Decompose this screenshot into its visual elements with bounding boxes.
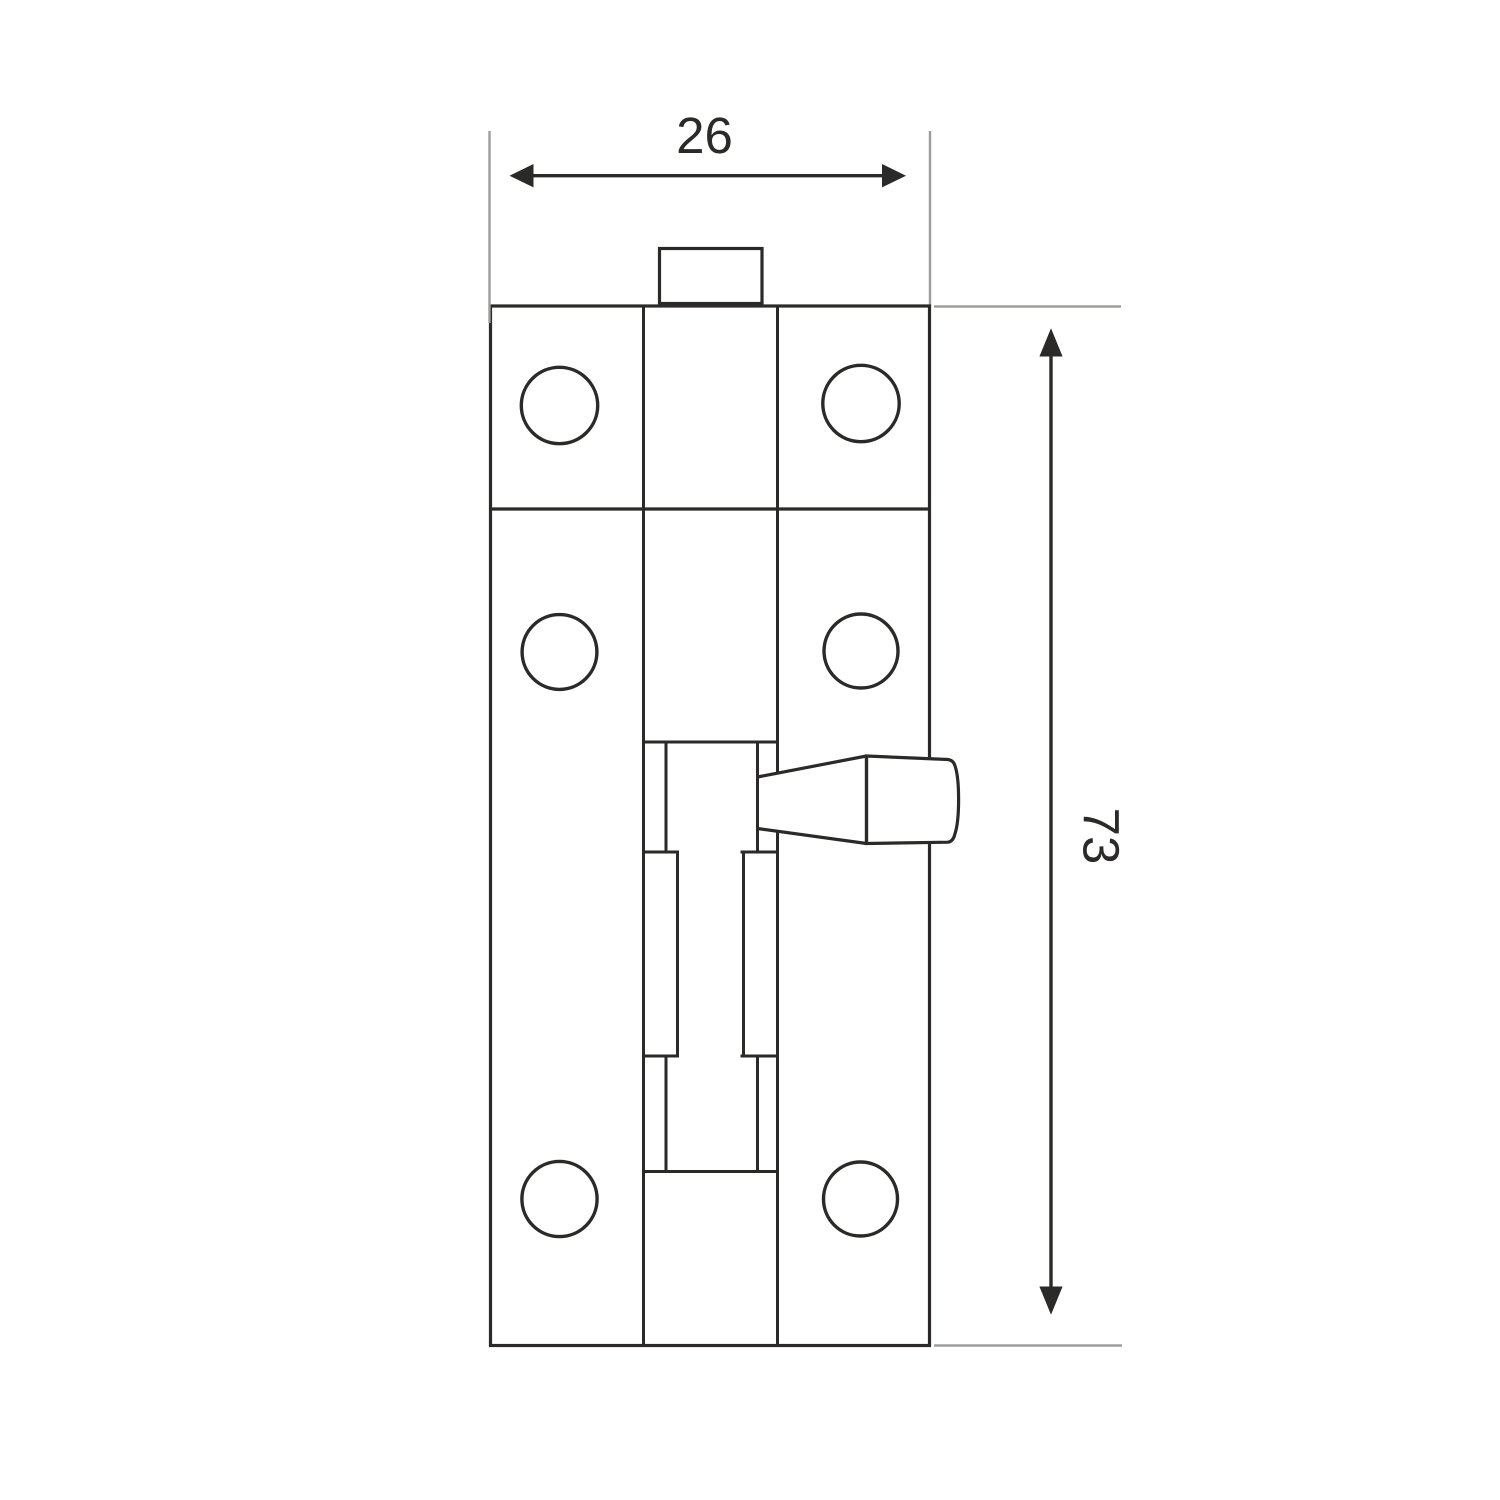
svg-text:73: 73 <box>1073 808 1130 865</box>
svg-text:26: 26 <box>676 107 733 164</box>
